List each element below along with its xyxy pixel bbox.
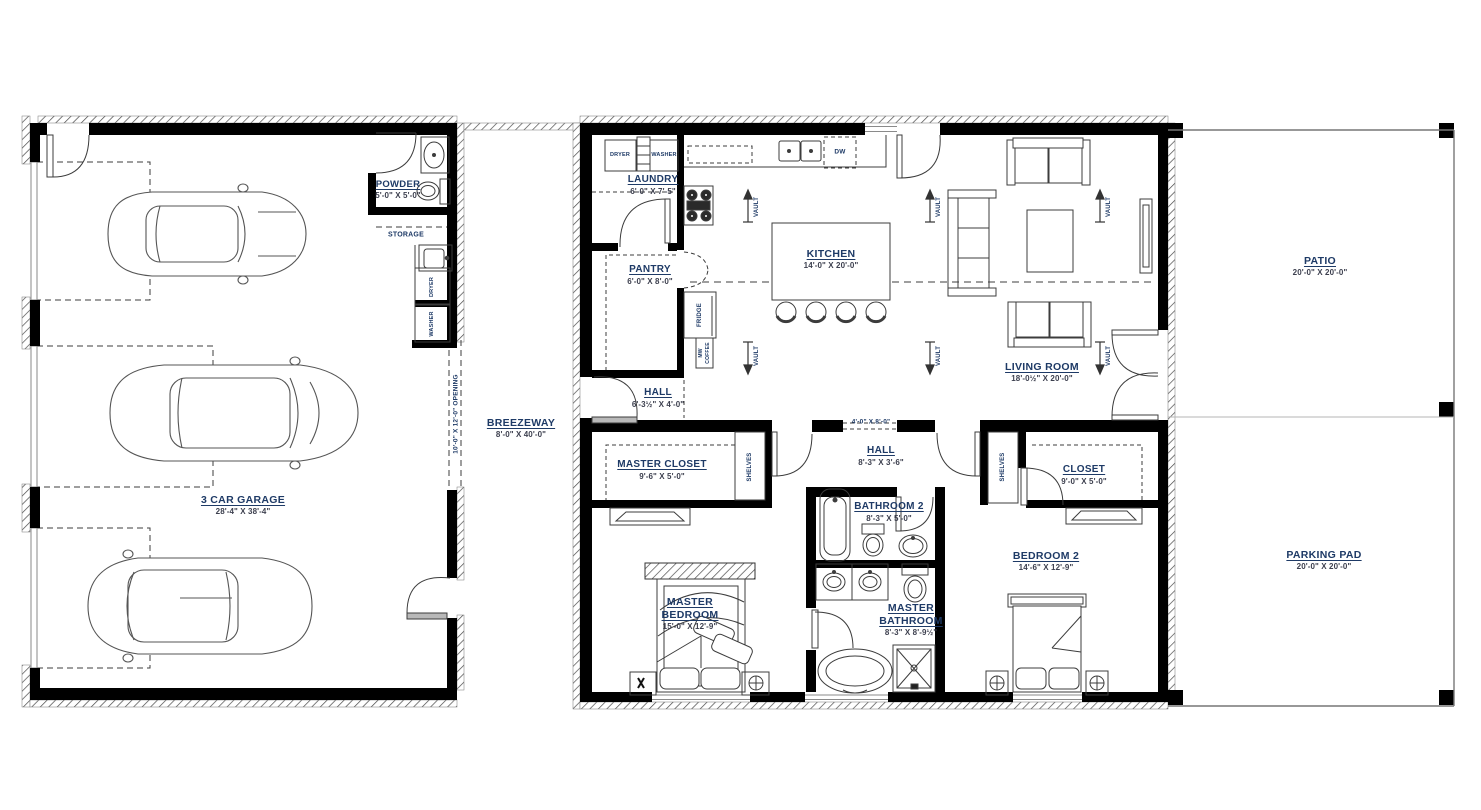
room-name: PANTRY: [627, 264, 673, 277]
room-name: LIVING ROOM: [1005, 361, 1079, 374]
garage-door-openings: [31, 162, 37, 668]
room-dims: 6'-3½" X 4'-0": [632, 400, 684, 410]
room-label-hall1: HALL 6'-3½" X 4'-0": [632, 387, 684, 410]
room-name: BREEZEWAY: [487, 417, 555, 430]
room-label-powder: POWDER 5'-0" X 5'-0": [375, 179, 421, 201]
fixtures: [415, 135, 1152, 695]
room-dims: 9'-0" X 5'-0": [1061, 477, 1107, 487]
room-name: PARKING PAD: [1286, 549, 1361, 562]
vault-label-1: VAULT: [754, 197, 760, 217]
car-sedan: [110, 357, 358, 469]
room-label-kitchen: KITCHEN 14'-0" X 20'-0": [804, 248, 859, 271]
room-label-living-room: LIVING ROOM 18'-0½" X 20'-0": [1005, 361, 1079, 384]
room-dims: 6'-0" X 7'-5": [628, 187, 679, 197]
room-label-closet: CLOSET 9'-0" X 5'-0": [1061, 464, 1107, 487]
room-dims: 9'-6" X 5'-0": [617, 472, 706, 482]
floorplan-drawing: [0, 0, 1481, 810]
room-label-laundry: LAUNDRY 6'-0" X 7'-5": [628, 174, 679, 197]
car-sports: [108, 184, 306, 284]
microwave-label: MW: [698, 348, 704, 357]
fridge-label: FRIDGE: [697, 303, 703, 327]
coffee-label: COFFEE: [705, 342, 711, 363]
room-label-parking-pad: PARKING PAD 20'-0" X 20'-0": [1286, 549, 1361, 572]
room-label-patio: PATIO 20'-0" X 20'-0": [1293, 255, 1348, 278]
car-hatchback: [88, 550, 312, 662]
vault-label-6: VAULT: [1106, 346, 1112, 366]
room-name: KITCHEN: [804, 248, 859, 261]
room-name: PATIO: [1293, 255, 1348, 268]
shelves-label-master-closet: SHELVES: [747, 453, 753, 482]
garage-dryer-label: DRYER: [429, 277, 435, 297]
vault-label-3: VAULT: [1106, 197, 1112, 217]
laundry-dryer-label: DRYER: [610, 152, 630, 158]
room-dims: 8'-3" X 3'-6": [858, 458, 904, 468]
room-dims: 18'-0½" X 20'-0": [1005, 374, 1079, 384]
room-label-garage: 3 CAR GARAGE 28'-4" X 38'-4": [201, 494, 285, 517]
laundry-washer-label: WASHER: [651, 152, 676, 158]
room-label-bathroom2: BATHROOM 2 8'-3" X 5'-0": [854, 501, 923, 524]
room-dims: 8'-0" X 40'-0": [487, 430, 555, 440]
room-label-bedroom2: BEDROOM 2 14'-6" X 12'-9": [1013, 550, 1079, 573]
room-label-master-bedroom: MASTER BEDROOM 15'-0" X 12'-9": [654, 596, 726, 632]
room-label-pantry: PANTRY 6'-0" X 8'-0": [627, 264, 673, 287]
vault-label-4: VAULT: [754, 346, 760, 366]
room-name: BATHROOM 2: [854, 501, 923, 514]
room-dims: 8'-3" X 5'-0": [854, 514, 923, 524]
room-dims: 14'-6" X 12'-9": [1013, 563, 1079, 573]
room-name: POWDER: [375, 179, 421, 191]
storage-label: STORAGE: [388, 232, 424, 239]
room-name: MASTER CLOSET: [617, 459, 706, 472]
floor-plan: 3 CAR GARAGE 28'-4" X 38'-4" POWDER 5'-0…: [0, 0, 1481, 810]
vault-label-2: VAULT: [936, 197, 942, 217]
cars: [88, 184, 358, 662]
hall-opening-dim-label: 4'-0" X 8'-0": [852, 419, 891, 426]
room-label-master-bathroom: MASTER BATHROOM 8'-3" X 8'-9½": [871, 602, 951, 638]
vault-label-5: VAULT: [936, 346, 942, 366]
garage-washer-label: WASHER: [429, 311, 435, 336]
dishwasher-label: DW: [834, 149, 845, 156]
room-label-breezeway: BREEZEWAY 8'-0" X 40'-0": [487, 417, 555, 440]
room-label-hall2: HALL 8'-3" X 3'-6": [858, 445, 904, 468]
room-dims: 8'-3" X 8'-9½": [871, 628, 951, 638]
room-label-master-closet: MASTER CLOSET 9'-6" X 5'-0": [617, 459, 706, 482]
room-dims: 20'-0" X 20'-0": [1293, 268, 1348, 278]
room-name: MASTER BEDROOM: [654, 596, 726, 622]
room-name: MASTER BATHROOM: [871, 602, 951, 628]
room-dims: 14'-0" X 20'-0": [804, 261, 859, 271]
garage-opening-label: 10'-0" X 12'-0" OPENING: [453, 374, 460, 454]
room-name: CLOSET: [1061, 464, 1107, 477]
room-name: 3 CAR GARAGE: [201, 494, 285, 507]
room-name: HALL: [858, 445, 904, 458]
room-dims: 6'-0" X 8'-0": [627, 277, 673, 287]
room-name: HALL: [632, 387, 684, 400]
room-dims: 15'-0" X 12'-9": [654, 622, 726, 632]
shelves-label-closet: SHELVES: [1000, 453, 1006, 482]
room-name: LAUNDRY: [628, 174, 679, 187]
room-dims: 28'-4" X 38'-4": [201, 507, 285, 517]
room-name: BEDROOM 2: [1013, 550, 1079, 563]
room-dims: 20'-0" X 20'-0": [1286, 562, 1361, 572]
room-dims: 5'-0" X 5'-0": [375, 191, 421, 201]
